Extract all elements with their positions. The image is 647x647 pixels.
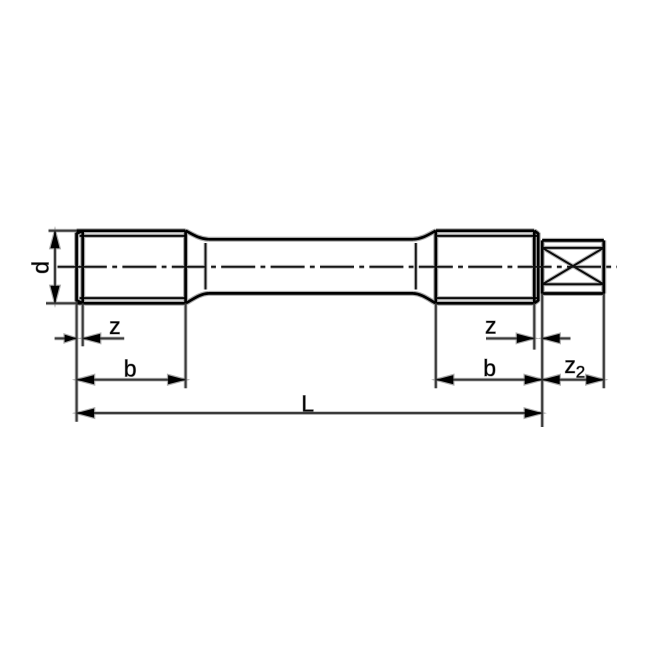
- svg-text:d: d: [28, 261, 54, 274]
- svg-text:2: 2: [576, 363, 585, 382]
- svg-text:b: b: [483, 355, 496, 381]
- svg-text:z: z: [109, 313, 121, 339]
- svg-text:L: L: [301, 391, 314, 417]
- svg-text:z: z: [485, 313, 497, 339]
- svg-text:b: b: [124, 356, 137, 382]
- svg-text:z: z: [564, 352, 576, 378]
